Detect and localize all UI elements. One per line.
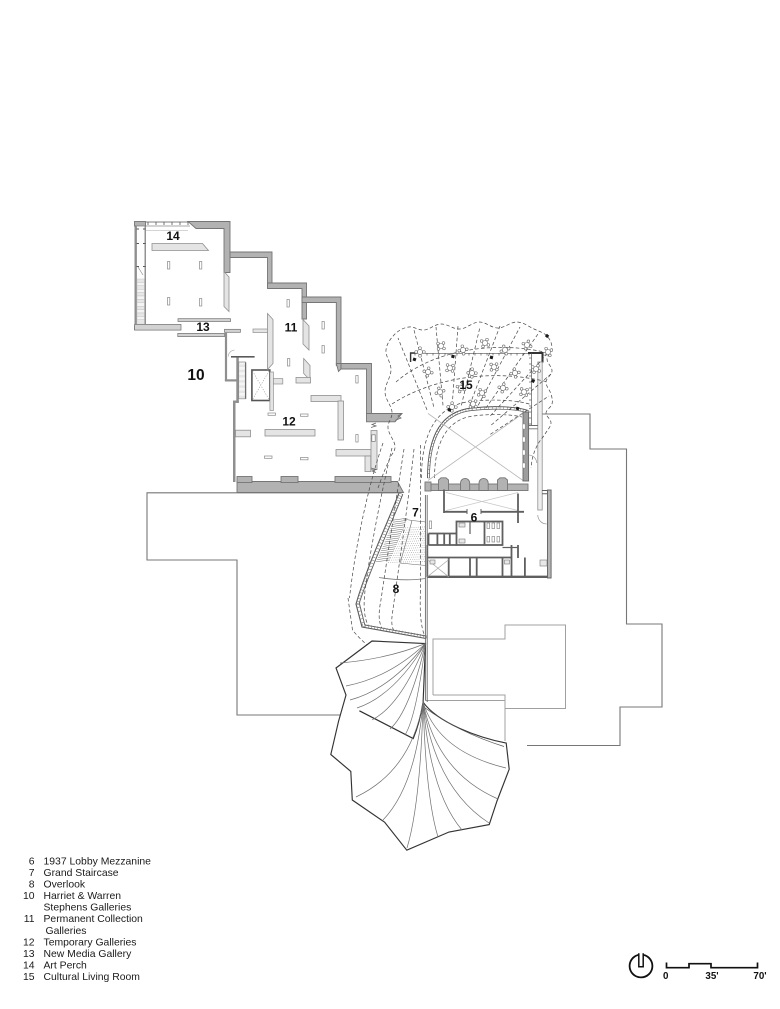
svg-text:14: 14 bbox=[166, 229, 180, 243]
svg-text:11: 11 bbox=[24, 914, 35, 925]
svg-text:1937 Lobby Mezzanine: 1937 Lobby Mezzanine bbox=[44, 857, 152, 868]
svg-text:13: 13 bbox=[23, 949, 35, 960]
svg-text:12: 12 bbox=[282, 415, 296, 429]
svg-text:8: 8 bbox=[29, 880, 35, 891]
svg-text:Harriet & Warren: Harriet & Warren bbox=[44, 891, 122, 902]
svg-text:14: 14 bbox=[23, 960, 35, 971]
svg-text:8: 8 bbox=[393, 582, 400, 596]
svg-text:35': 35' bbox=[705, 971, 718, 982]
svg-text:12: 12 bbox=[23, 937, 35, 948]
svg-text:Temporary Galleries: Temporary Galleries bbox=[44, 937, 137, 948]
svg-text:Stephens Galleries: Stephens Galleries bbox=[44, 903, 132, 914]
svg-text:7: 7 bbox=[412, 506, 419, 520]
svg-text:15: 15 bbox=[459, 378, 473, 392]
svg-text:New Media Gallery: New Media Gallery bbox=[44, 949, 133, 960]
svg-text:70': 70' bbox=[753, 971, 766, 982]
svg-text:0: 0 bbox=[663, 971, 669, 982]
svg-text:Galleries: Galleries bbox=[46, 926, 87, 937]
svg-text:6: 6 bbox=[29, 857, 35, 868]
svg-text:Overlook: Overlook bbox=[44, 880, 86, 891]
svg-text:15: 15 bbox=[23, 972, 35, 983]
svg-text:10: 10 bbox=[23, 891, 35, 902]
svg-text:11: 11 bbox=[285, 321, 298, 335]
svg-text:10: 10 bbox=[187, 367, 204, 384]
svg-text:Art Perch: Art Perch bbox=[44, 960, 88, 971]
svg-text:Grand Staircase: Grand Staircase bbox=[44, 868, 119, 879]
svg-text:13: 13 bbox=[196, 320, 210, 334]
svg-text:Cultural Living Room: Cultural Living Room bbox=[44, 972, 140, 983]
svg-text:6: 6 bbox=[471, 511, 478, 525]
svg-text:Permanent Collection: Permanent Collection bbox=[44, 914, 144, 925]
svg-text:7: 7 bbox=[29, 868, 35, 879]
